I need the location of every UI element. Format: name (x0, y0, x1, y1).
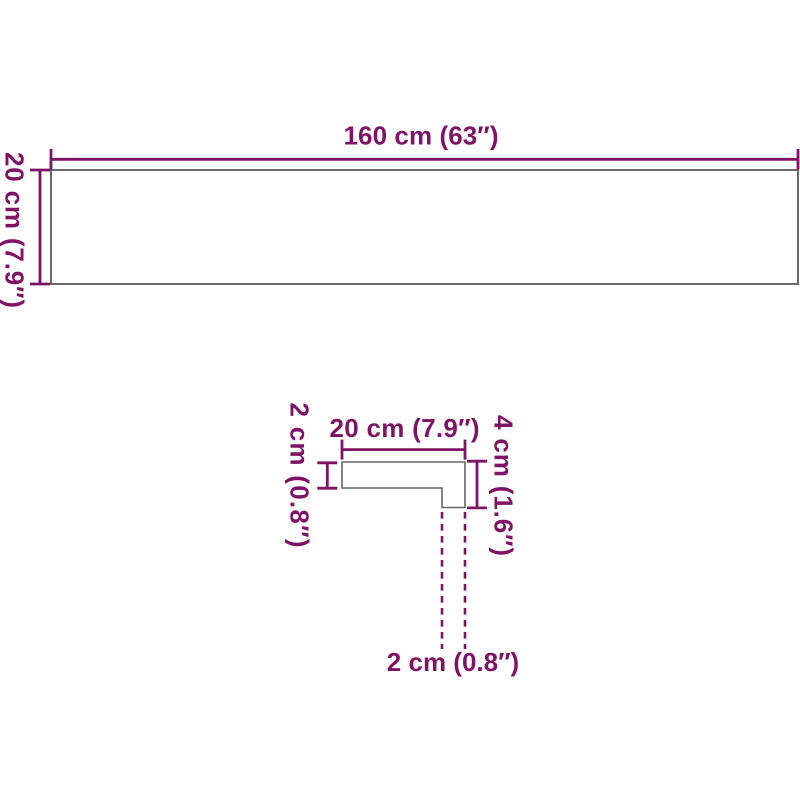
svg-text:20 cm (7.9″): 20 cm (7.9″) (330, 413, 480, 443)
svg-text:20 cm (7.9″): 20 cm (7.9″) (0, 152, 30, 308)
svg-text:2 cm (0.8″): 2 cm (0.8″) (387, 647, 519, 677)
svg-text:4 cm (1.6″): 4 cm (1.6″) (489, 415, 519, 556)
svg-text:160 cm (63″): 160 cm (63″) (344, 121, 499, 151)
svg-text:2 cm (0.8″): 2 cm (0.8″) (285, 403, 315, 548)
